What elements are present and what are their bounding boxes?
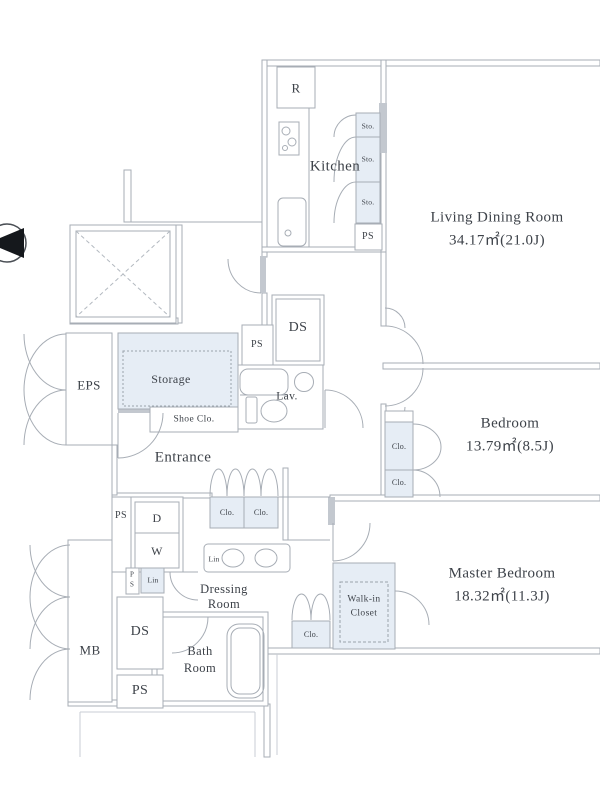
hall-closets xyxy=(210,469,278,528)
ps-washer-label: PS xyxy=(115,511,127,521)
shoe-closet-label: Shoe Clo. xyxy=(173,415,214,425)
bath-room-label-1: Bath xyxy=(187,645,212,658)
bath-room-box xyxy=(152,612,268,706)
dryer-label: D xyxy=(152,512,161,524)
north-arrow-icon xyxy=(0,224,26,262)
master-bedroom-label: Master Bedroom xyxy=(449,567,556,582)
bedroom-label: Bedroom xyxy=(481,417,540,432)
master-closet-box xyxy=(292,594,330,648)
linen-label-small: Lin xyxy=(147,576,158,584)
fridge-label: R xyxy=(291,82,300,95)
washer-label: W xyxy=(151,545,163,557)
ps-upper-label: PS xyxy=(251,340,263,350)
dressing-room-label-2: Room xyxy=(208,598,240,611)
dressing-room-label-1: Dressing xyxy=(200,583,248,596)
ps-tiny-s: S xyxy=(130,582,134,589)
kitchen-label: Kitchen xyxy=(310,160,360,175)
hall-closet-label-2: Clo. xyxy=(254,509,268,517)
storage-closet-box xyxy=(118,333,238,409)
walkin-closet-label-1: Walk-in xyxy=(347,595,380,605)
bedroom-area: 13.79㎡(8.5J) xyxy=(466,440,554,455)
kitchen-hall-door-arc xyxy=(228,259,261,293)
walkin-door-arc xyxy=(395,591,429,625)
washer-dryer-unit xyxy=(112,497,183,572)
dressing-door-arc xyxy=(170,572,198,600)
mb-label: MB xyxy=(79,644,100,657)
hall-closet-label-1: Clo. xyxy=(220,509,234,517)
duct-shaft-box xyxy=(70,225,176,323)
living-room-label: Living Dining Room xyxy=(430,211,563,226)
floor-plan-drawing xyxy=(0,0,600,800)
lav-label: Lav. xyxy=(276,391,298,403)
storage-label: Storage xyxy=(151,373,190,385)
master-bedroom-area: 18.32㎡(11.3J) xyxy=(454,590,549,605)
lav-door-arc xyxy=(325,390,363,428)
ds-upper-label: DS xyxy=(289,321,308,335)
eps-door-arcs xyxy=(24,334,66,445)
bath-room-label-2: Room xyxy=(184,662,216,675)
walkin-closet-label-2: Closet xyxy=(351,609,378,619)
mb-door-arcs xyxy=(30,545,70,700)
floor-plan: Kitchen Living Dining Room 34.17㎡(21.0J)… xyxy=(0,0,600,800)
sto-label-1: Sto. xyxy=(362,122,375,130)
ps-kitchen-label: PS xyxy=(362,232,374,242)
ds-lower-label: DS xyxy=(131,625,150,639)
bedroom-closet-label-2: Clo. xyxy=(392,479,406,487)
sto-label-3: Sto. xyxy=(362,198,375,206)
master-closet-label: Clo. xyxy=(304,631,318,639)
mb-room-box xyxy=(68,540,112,702)
linen-label-vanity: Lin xyxy=(208,555,219,563)
kitchen-sink xyxy=(278,198,306,246)
bedroom-closet-label-1: Clo. xyxy=(392,443,406,451)
sto-label-2: Sto. xyxy=(362,155,375,163)
master-door-arc xyxy=(333,523,370,561)
living-room-area: 34.17㎡(21.0J) xyxy=(449,234,545,249)
ps-lower-label: PS xyxy=(132,684,148,698)
stove xyxy=(279,122,299,155)
eps-label: EPS xyxy=(77,379,101,392)
ps-tiny-p: P xyxy=(130,572,134,579)
walkin-closet-box xyxy=(333,563,429,649)
entrance-label: Entrance xyxy=(155,451,212,466)
